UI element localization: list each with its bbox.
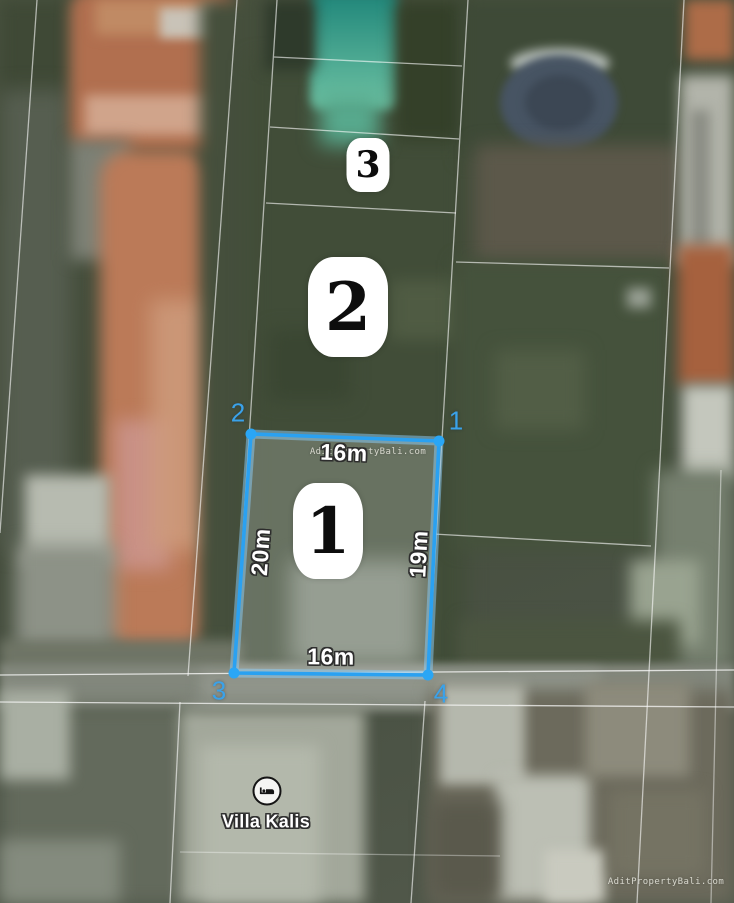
cadastral-line	[456, 262, 669, 268]
corner-label-2: 2	[231, 398, 245, 429]
cadastral-line	[433, 534, 651, 546]
dimension-left: 20m	[246, 527, 276, 576]
plot-3-badge[interactable]: 3	[347, 138, 390, 192]
corner-point-4	[423, 670, 434, 681]
bed-lodging-icon	[253, 777, 282, 806]
plot-1-badge[interactable]: 1	[293, 483, 363, 579]
corner-label-4: 4	[434, 679, 448, 710]
cadastral-line	[188, 0, 237, 676]
dimension-right: 19m	[404, 530, 433, 579]
cadastral-line	[170, 702, 180, 903]
cadastral-line	[180, 852, 500, 856]
plot-2-badge[interactable]: 2	[308, 257, 388, 357]
poi-label: Villa Kalis	[222, 812, 310, 833]
cadastral-line	[637, 0, 684, 903]
cadastral-line	[0, 0, 37, 533]
bed-icon	[259, 783, 276, 800]
corner-point-1	[434, 436, 445, 447]
dimension-bottom: 16m	[307, 643, 355, 670]
corner-label-3: 3	[212, 676, 226, 707]
cadastral-line	[711, 470, 721, 903]
cadastral-line	[411, 701, 425, 903]
cadastral-line	[274, 57, 462, 66]
watermark-corner: AditPropertyBali.com	[608, 877, 724, 887]
property-map-screenshot: AditPropertyBali.com AditPropertyBali.co…	[0, 0, 734, 903]
poi-villa-kalis[interactable]	[253, 777, 282, 806]
corner-label-1: 1	[449, 406, 463, 437]
cadastral-line	[0, 702, 734, 707]
dimension-top: 16m	[320, 439, 368, 468]
corner-point-3	[229, 668, 240, 679]
cadastral-line	[266, 203, 456, 213]
corner-point-2	[246, 429, 257, 440]
